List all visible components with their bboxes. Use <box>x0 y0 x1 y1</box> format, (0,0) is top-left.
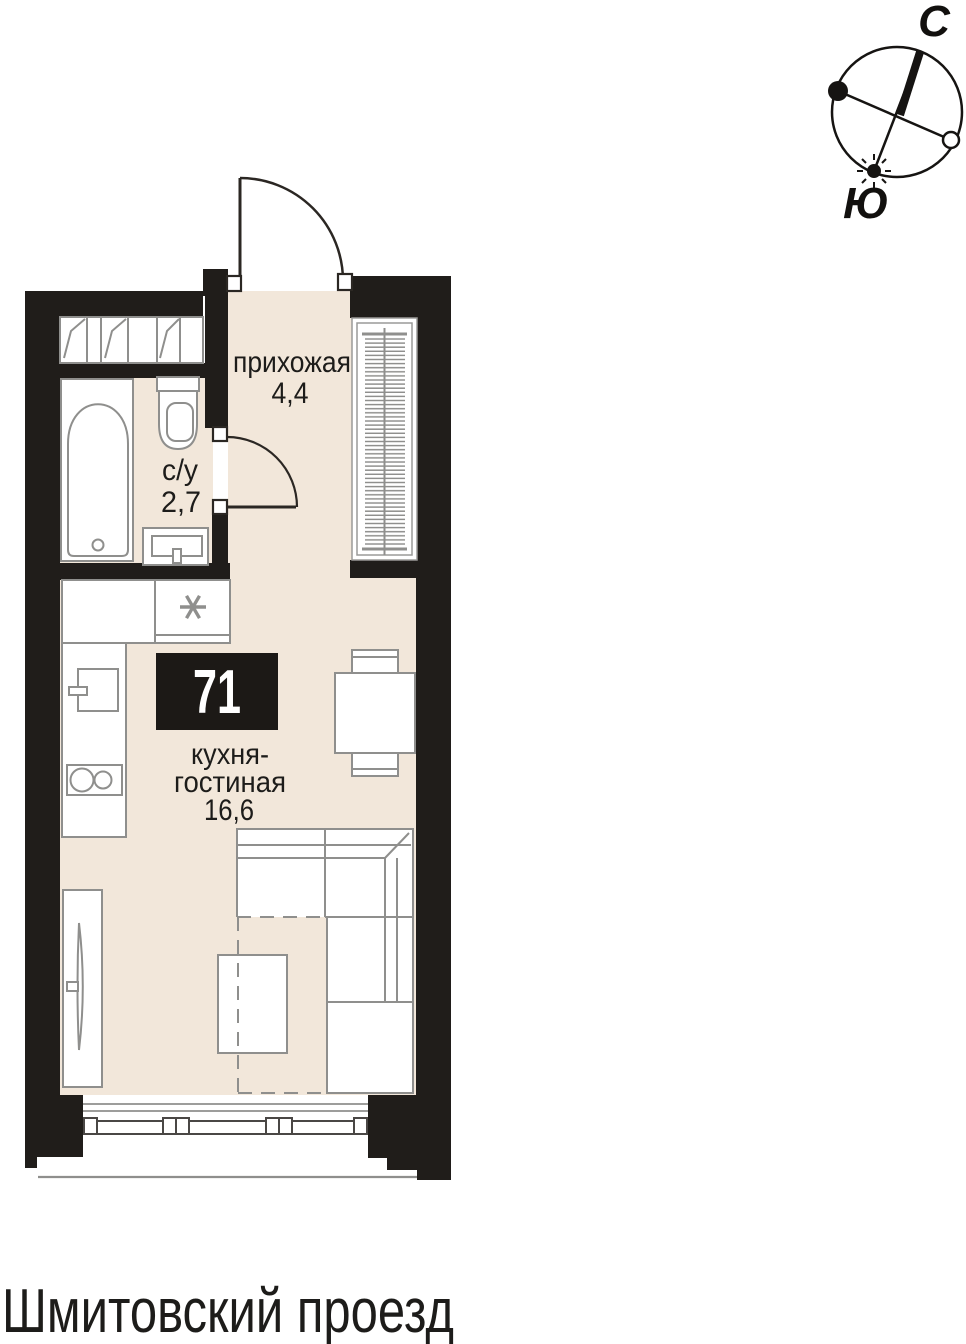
apartment-number: 71 <box>193 658 241 727</box>
tv-icon <box>63 890 102 1087</box>
hallway-floor <box>228 291 352 578</box>
compass-cross-line <box>838 91 951 140</box>
compass-south-label: Ю <box>843 179 889 228</box>
compass-rose: С Ю <box>828 0 962 228</box>
dining-table-icon <box>335 673 415 753</box>
compass-north-label: С <box>918 0 951 46</box>
room-label-bathroom: с/у <box>162 454 198 487</box>
wall-closet-top <box>25 291 203 317</box>
compass-open-dot <box>943 132 959 148</box>
wall-below-wardrobe <box>350 560 451 578</box>
wall-bottom-right <box>368 1095 451 1180</box>
room-area-hallway: 4,4 <box>272 377 309 410</box>
door-jamb <box>338 274 352 290</box>
wall-top-right <box>350 276 451 318</box>
chair-icon <box>352 650 398 673</box>
compass-north-needle <box>900 52 920 115</box>
window <box>38 1104 417 1177</box>
floor-plan-canvas: С Ю <box>0 0 966 1344</box>
entrance-door <box>227 178 352 291</box>
bathroom-sink-icon <box>143 528 208 565</box>
stove-icon <box>67 765 122 795</box>
wall-left <box>25 291 60 1095</box>
floor-connector <box>230 560 352 580</box>
coffee-table-icon <box>218 955 287 1053</box>
chair-icon <box>352 753 398 776</box>
compass-filled-dot <box>828 81 848 101</box>
room-area-bathroom: 2,7 <box>161 486 201 519</box>
toilet-icon <box>157 377 199 449</box>
door-jamb <box>213 427 227 441</box>
wardrobe-icon <box>352 318 417 560</box>
wall-hallway-bath-upper <box>205 291 228 428</box>
wall-bottom-left <box>25 1095 83 1168</box>
room-label-hallway: прихожая <box>233 346 351 379</box>
wall-closet-bottom <box>25 363 213 378</box>
street-label: Шмитовский проезд <box>2 1277 454 1344</box>
washing-machine-icon <box>155 580 230 643</box>
sofa-ottoman <box>327 1002 413 1093</box>
wall-hallway-bath-lower <box>212 511 228 571</box>
door-jamb <box>213 500 227 514</box>
closet-icon <box>60 317 203 363</box>
bathtub-icon <box>61 379 133 561</box>
door-jamb <box>227 276 241 291</box>
room-area-kitchen: 16,6 <box>204 794 254 827</box>
wall-right <box>416 318 451 1095</box>
apartment-number-badge: 71 <box>156 653 278 730</box>
